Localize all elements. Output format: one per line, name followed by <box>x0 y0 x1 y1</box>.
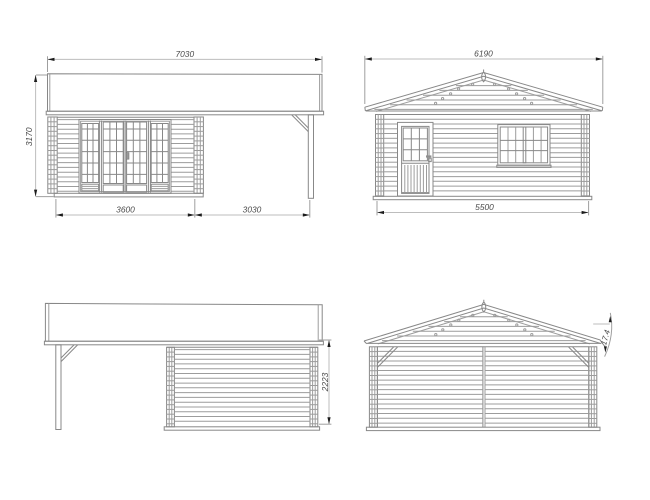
svg-text:7030: 7030 <box>175 49 194 59</box>
svg-text:2223: 2223 <box>320 372 330 392</box>
svg-text:3030: 3030 <box>243 205 262 215</box>
svg-text:3170: 3170 <box>24 127 34 146</box>
svg-text:6190: 6190 <box>474 49 493 59</box>
svg-text:3600: 3600 <box>116 205 135 215</box>
svg-text:5500: 5500 <box>475 202 494 212</box>
